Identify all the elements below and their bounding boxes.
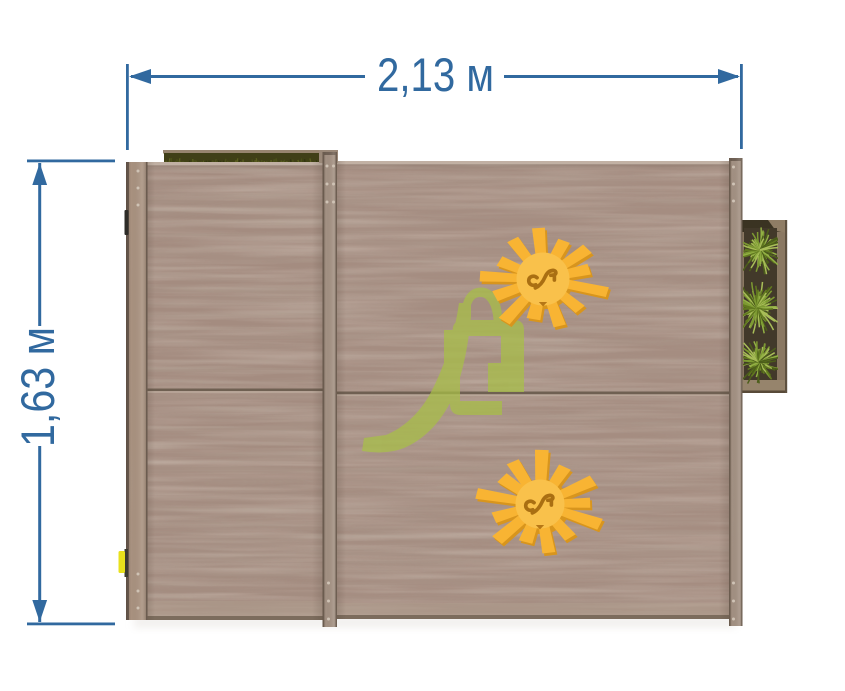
svg-text:1,63 м: 1,63 м [11,327,64,447]
svg-text:2,13 м: 2,13 м [377,48,494,101]
